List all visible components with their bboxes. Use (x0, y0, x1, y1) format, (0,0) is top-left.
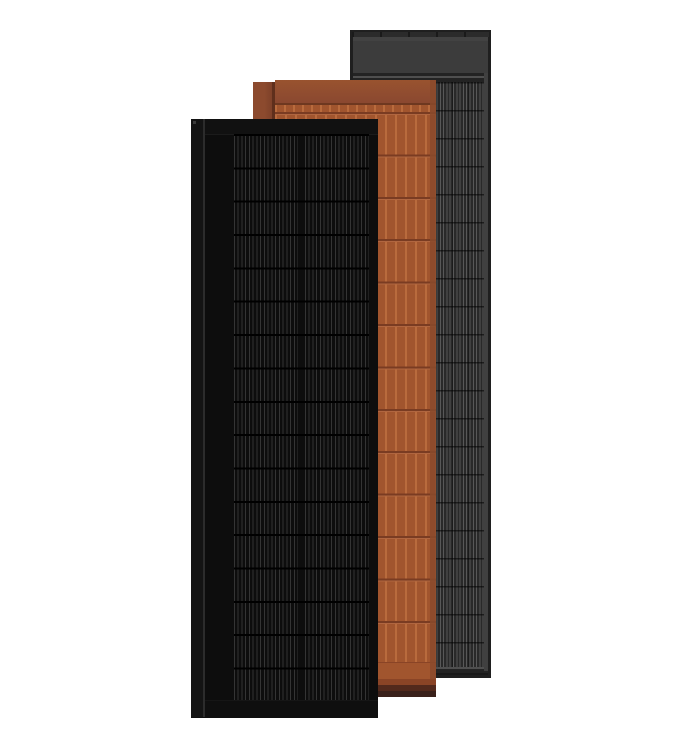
black-cell-row-dividers (234, 134, 369, 701)
black-cell-grid (234, 134, 369, 701)
black-top-frame-band (205, 119, 378, 135)
black-flange-corner-notch (193, 121, 196, 124)
terracotta-right-edge (430, 80, 436, 679)
solar-panel-black (191, 119, 378, 718)
black-face (205, 119, 378, 718)
graphite-header-band (353, 37, 488, 73)
black-side-flange (191, 119, 205, 717)
terracotta-header-band (275, 80, 436, 105)
terracotta-small-ridge-row (275, 105, 436, 112)
product-render-stage (0, 0, 684, 748)
black-bottom-frame-band (205, 700, 378, 718)
graphite-right-frame-edge (484, 73, 488, 671)
